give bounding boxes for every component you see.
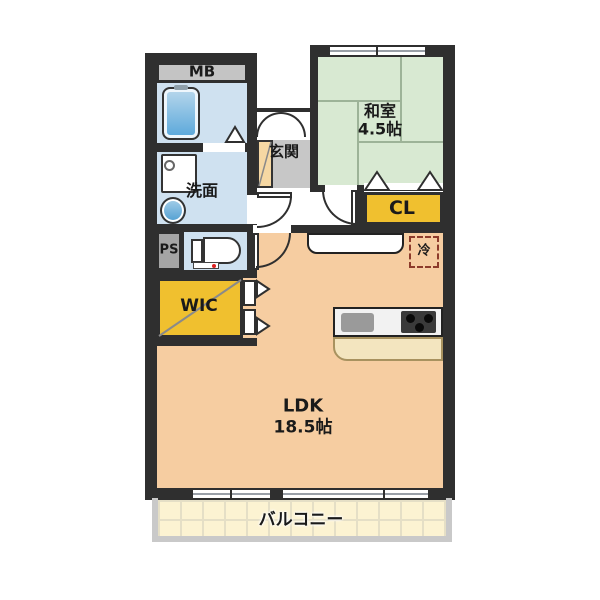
ldk-size: 18.5帖 <box>274 417 333 437</box>
burner-icon <box>424 314 433 323</box>
toilet-tank-icon <box>191 239 203 263</box>
label-refrigerator: 冷 <box>417 245 430 260</box>
washing-machine-icon <box>160 197 186 224</box>
label-wic: WIC <box>180 297 218 317</box>
balcony-edge <box>152 536 452 542</box>
wall <box>145 224 257 232</box>
kitchen-cupboard-icon <box>307 233 404 254</box>
wall <box>310 45 318 192</box>
label-entrance: 玄関 <box>269 143 299 160</box>
japanese-room-name: 和室 <box>364 102 396 121</box>
label-meter-box: MB <box>189 63 215 80</box>
japanese-room-size: 4.5帖 <box>358 120 402 139</box>
label-ldk: LDK 18.5帖 <box>274 396 333 437</box>
faucet-icon <box>174 85 188 90</box>
toilet-bowl-icon <box>203 237 241 264</box>
window-divider <box>376 47 378 55</box>
kitchen-sink-icon <box>341 313 374 332</box>
closet-slide-strip <box>364 183 443 190</box>
bathroom-door-opening <box>203 143 245 152</box>
window <box>385 490 428 498</box>
burner-icon <box>406 314 415 323</box>
label-japanese-room: 和室 4.5帖 <box>358 103 402 140</box>
window-divider <box>230 490 232 498</box>
label-pipe-space: PS <box>160 244 179 259</box>
wall <box>247 63 257 195</box>
label-balcony: バルコニー <box>259 511 344 531</box>
wic-folding-door-panel <box>243 280 256 306</box>
ldk-name: LDK <box>283 395 323 416</box>
sink-drain-icon <box>164 160 175 171</box>
label-closet: CL <box>389 198 415 220</box>
wall <box>181 232 184 270</box>
label-washroom: 洗面 <box>186 182 218 200</box>
tatami-seam <box>357 141 443 143</box>
wall <box>357 185 364 232</box>
kitchen-counter-icon <box>333 337 443 361</box>
window <box>283 490 383 498</box>
floor-plan: MB 洗面 PS WIC 玄関 和室 4.5帖 CL 冷 LDK 18.5帖 バ… <box>0 0 600 600</box>
burner-icon <box>415 323 424 332</box>
wall <box>443 45 455 500</box>
wic-folding-door-panel <box>243 309 256 335</box>
wall <box>145 270 257 278</box>
wall <box>145 338 257 346</box>
toilet-control-dot <box>212 264 216 268</box>
bathtub-icon <box>162 87 200 140</box>
